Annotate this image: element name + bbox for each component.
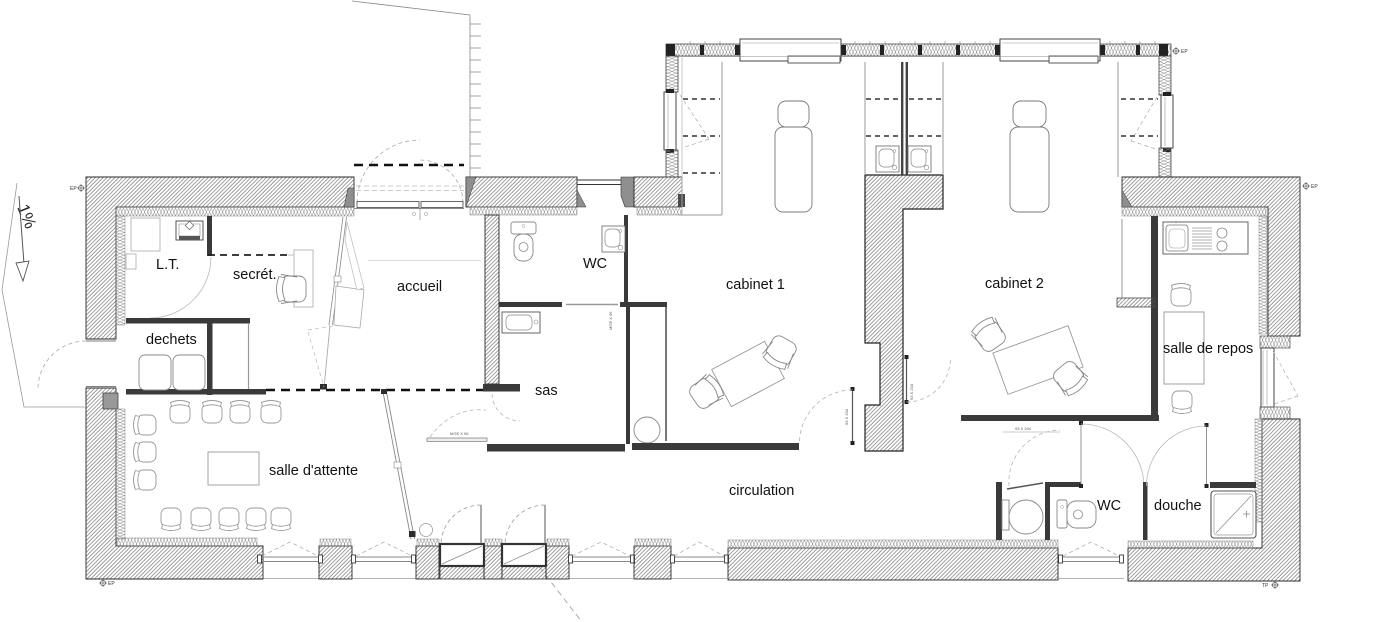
svg-text:sas: sas [535, 383, 558, 399]
svg-text:salle de repos: salle de repos [1163, 341, 1253, 357]
svg-text:EP: EP [1311, 184, 1318, 190]
svg-text:93 X 204: 93 X 204 [844, 408, 849, 425]
svg-text:WC: WC [583, 256, 607, 272]
svg-text:MGE X 06: MGE X 06 [450, 431, 469, 436]
svg-text:93 X 204: 93 X 204 [1015, 426, 1032, 431]
svg-text:douche: douche [1154, 498, 1202, 514]
svg-text:EP: EP [1181, 49, 1188, 55]
svg-text:WC: WC [1097, 498, 1121, 514]
svg-text:TP: TP [1262, 583, 1269, 589]
svg-text:salle d'attente: salle d'attente [269, 463, 358, 479]
svg-text:dechets: dechets [146, 332, 197, 348]
svg-text:L.T.: L.T. [156, 257, 179, 273]
svg-text:circulation: circulation [729, 483, 794, 499]
svg-text:EP: EP [108, 581, 115, 587]
svg-text:cabinet 2: cabinet 2 [985, 276, 1044, 292]
svg-text:MGE X 05: MGE X 05 [608, 311, 613, 330]
svg-text:93 X 204: 93 X 204 [909, 383, 914, 400]
svg-text:secrét.: secrét. [233, 267, 277, 283]
svg-text:accueil: accueil [397, 279, 442, 295]
svg-text:EP: EP [70, 186, 77, 192]
svg-text:cabinet 1: cabinet 1 [726, 277, 785, 293]
